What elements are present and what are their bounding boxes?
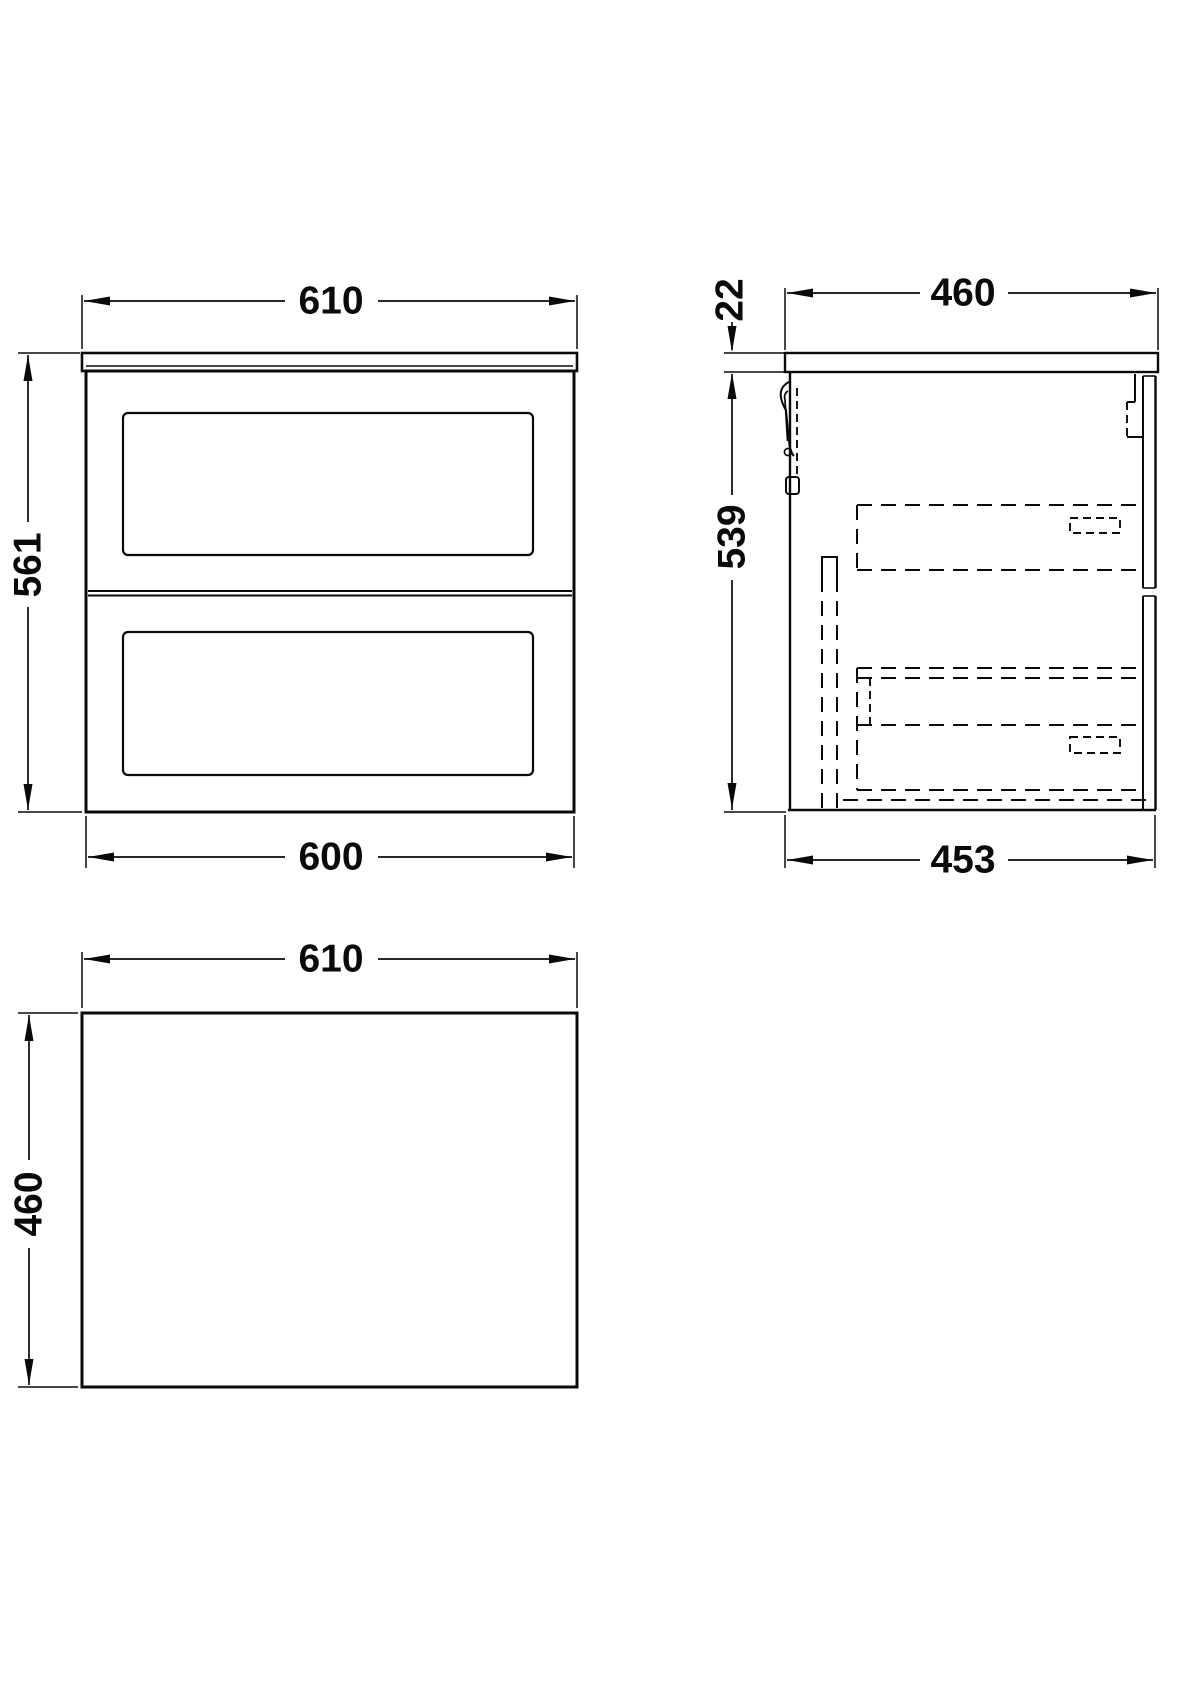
arrow-left-icon: [84, 955, 110, 964]
side-dim-body-height: 539: [711, 373, 787, 812]
plan-view: 610 460: [8, 938, 578, 1388]
arrow-up-icon: [24, 355, 33, 381]
arrow-down-icon: [25, 1359, 34, 1385]
arrow-left-icon: [787, 289, 813, 298]
front-dim-width-top: 610: [82, 280, 577, 350]
technical-drawing-canvas: 610 561 600: [0, 0, 1190, 1684]
side-fixing-notch: [1127, 374, 1143, 437]
dim-label-front-height: 561: [7, 532, 50, 597]
front-dim-width-bottom: 600: [86, 816, 574, 879]
plan-worktop-outline: [82, 1013, 577, 1387]
side-drawer1-handle: [1070, 518, 1120, 533]
dim-label-plan-depth: 460: [8, 1171, 51, 1236]
side-drawer1-hidden: [857, 505, 1142, 570]
side-dim-worktop-thickness: 22: [709, 278, 789, 372]
arrow-up-icon: [25, 1015, 34, 1041]
arrow-up-icon: [728, 373, 737, 399]
front-countertop: [82, 353, 577, 371]
dim-label-plan-width: 610: [298, 938, 363, 981]
arrow-left-icon: [787, 856, 813, 865]
arrow-right-icon: [1127, 856, 1153, 865]
dim-label-front-width-bottom: 600: [298, 836, 363, 879]
arrow-down-icon: [24, 784, 33, 810]
arrow-right-icon: [1130, 289, 1156, 298]
side-drawer2-handle: [1070, 737, 1120, 753]
dim-label-side-depth-top: 460: [930, 272, 995, 315]
side-countertop: [785, 353, 1158, 372]
arrow-right-icon: [549, 955, 575, 964]
side-dim-depth-top: 460: [785, 272, 1158, 351]
side-mounting-rail: [822, 557, 837, 808]
dim-label-side-body-height: 539: [711, 504, 754, 569]
arrow-left-icon: [88, 853, 114, 862]
dim-label-front-width-top: 610: [298, 280, 363, 323]
dim-label-side-worktop-thickness: 22: [709, 278, 752, 321]
side-front-panel: [1143, 376, 1156, 810]
front-view: 610 561 600: [7, 280, 578, 879]
side-drawer2-hidden: [843, 668, 1152, 800]
side-view: 460 22 539: [709, 272, 1159, 882]
side-dim-depth-bottom: 453: [785, 815, 1155, 882]
dim-label-side-depth-bottom: 453: [930, 839, 995, 882]
arrow-right-icon: [549, 297, 575, 306]
arrow-right-icon: [546, 853, 572, 862]
drawing-svg: 610 561 600: [0, 0, 1190, 1684]
plan-dim-width: 610: [82, 938, 577, 1009]
arrow-left-icon: [84, 297, 110, 306]
plan-dim-depth: 460: [8, 1013, 79, 1387]
front-dim-height: 561: [7, 353, 83, 812]
arrow-down-icon: [728, 326, 737, 352]
arrow-down-icon: [728, 783, 737, 809]
